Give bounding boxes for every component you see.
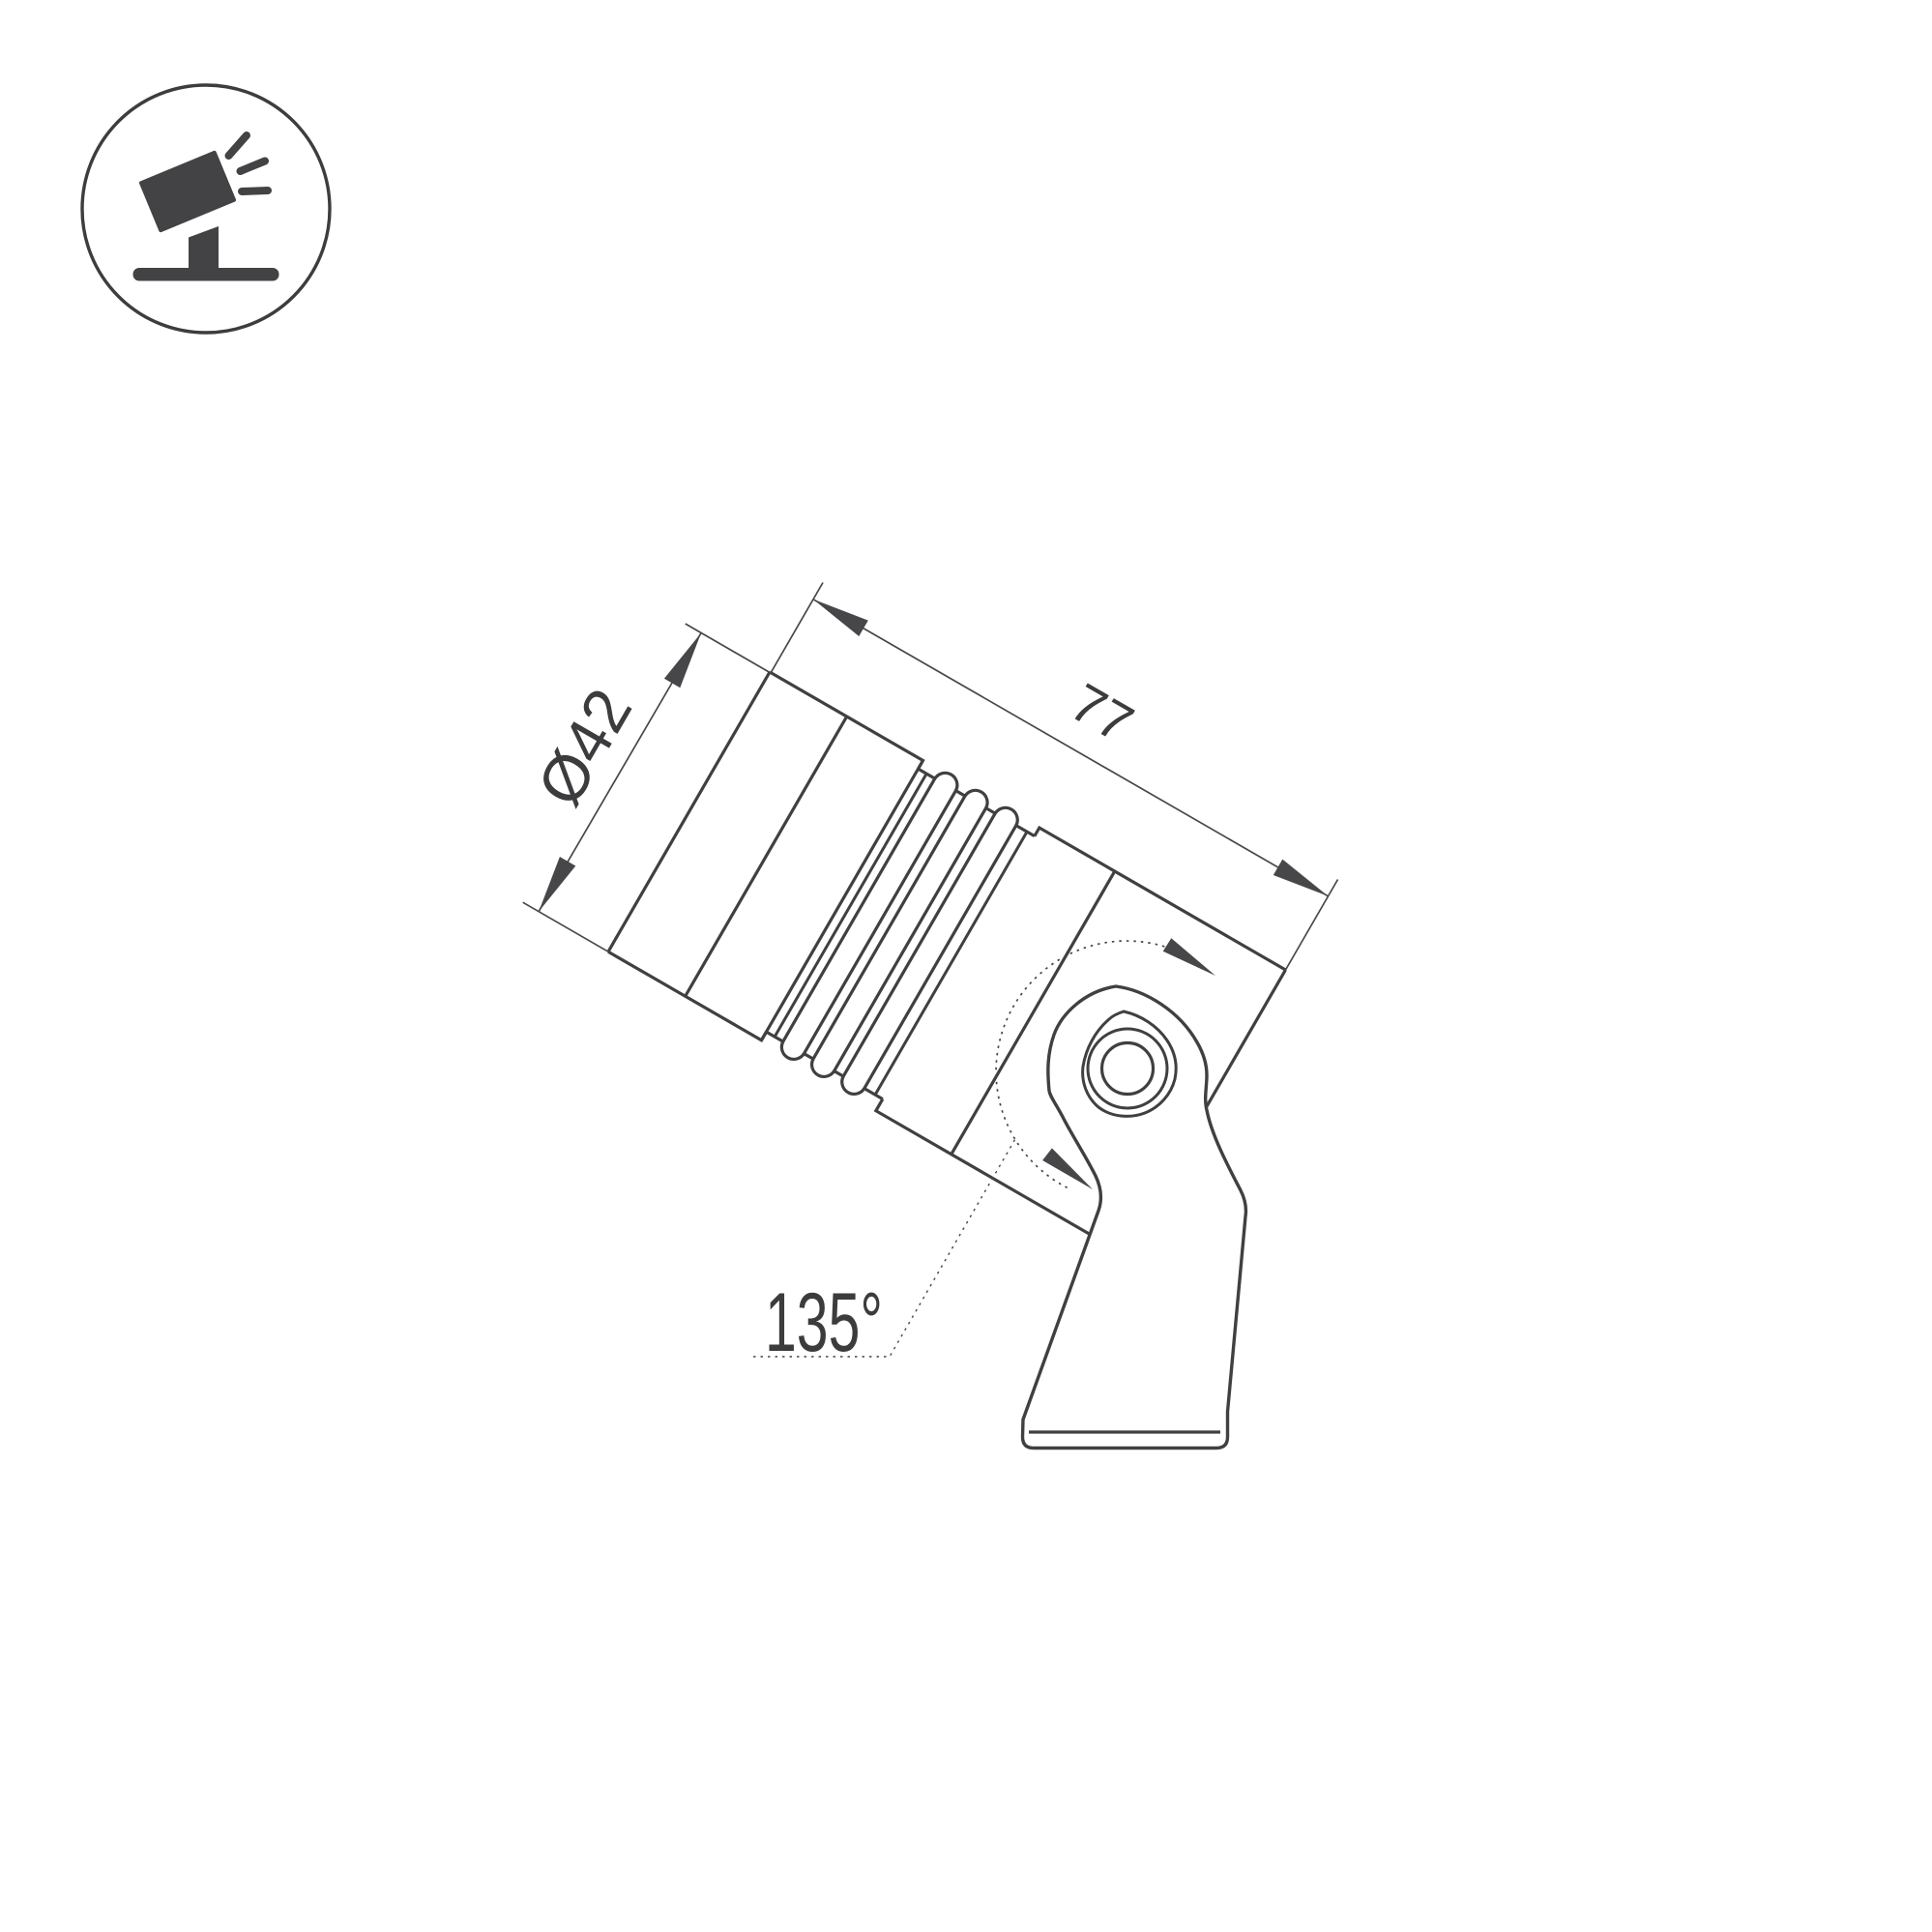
svg-text:135°: 135° [765, 1276, 883, 1369]
